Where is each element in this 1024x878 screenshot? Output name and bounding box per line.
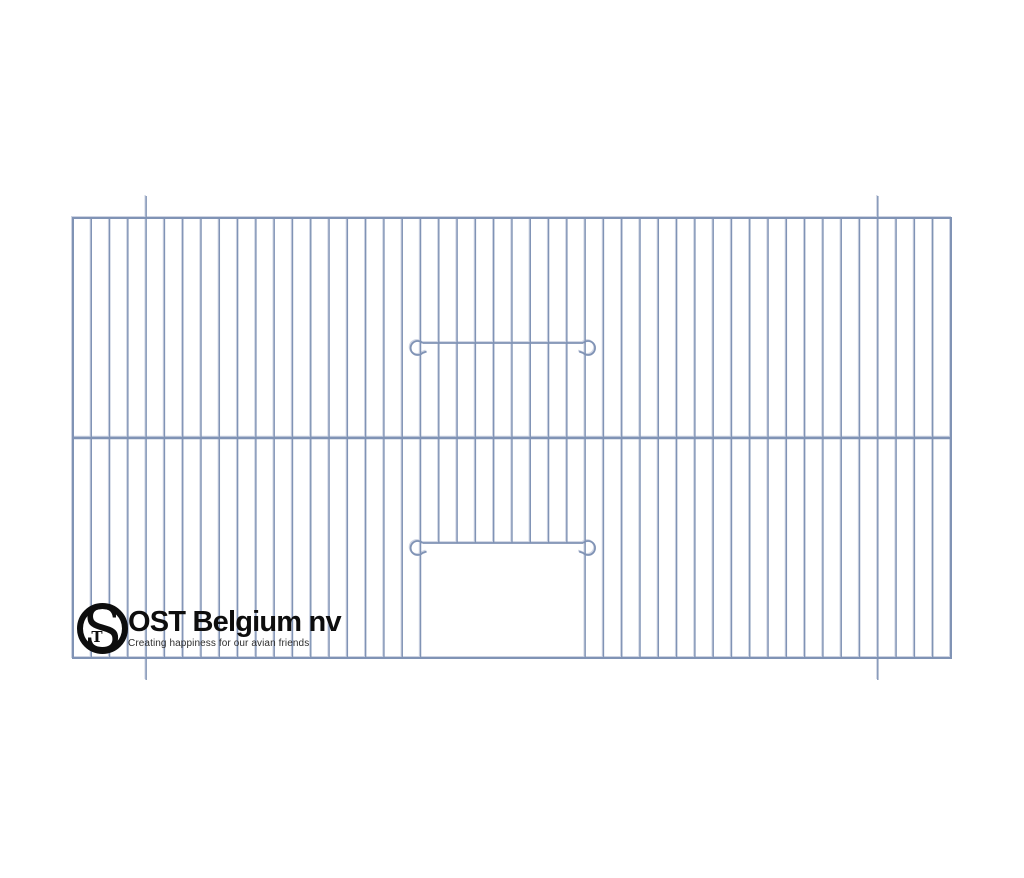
brand-text: OST Belgium nv Creating happiness for ou…: [128, 600, 341, 650]
ost-monogram-icon: S T: [74, 600, 131, 657]
brand-name: OST Belgium nv: [128, 607, 341, 637]
brand-tagline: Creating happiness for our avian friends: [128, 638, 341, 650]
cage-front-panel-drawing: [0, 0, 1024, 878]
drawing-canvas: S T OST Belgium nv Creating happiness fo…: [0, 0, 1024, 878]
brand-logo: S T OST Belgium nv Creating happiness fo…: [74, 600, 341, 657]
monogram-letter-t: T: [91, 628, 103, 646]
